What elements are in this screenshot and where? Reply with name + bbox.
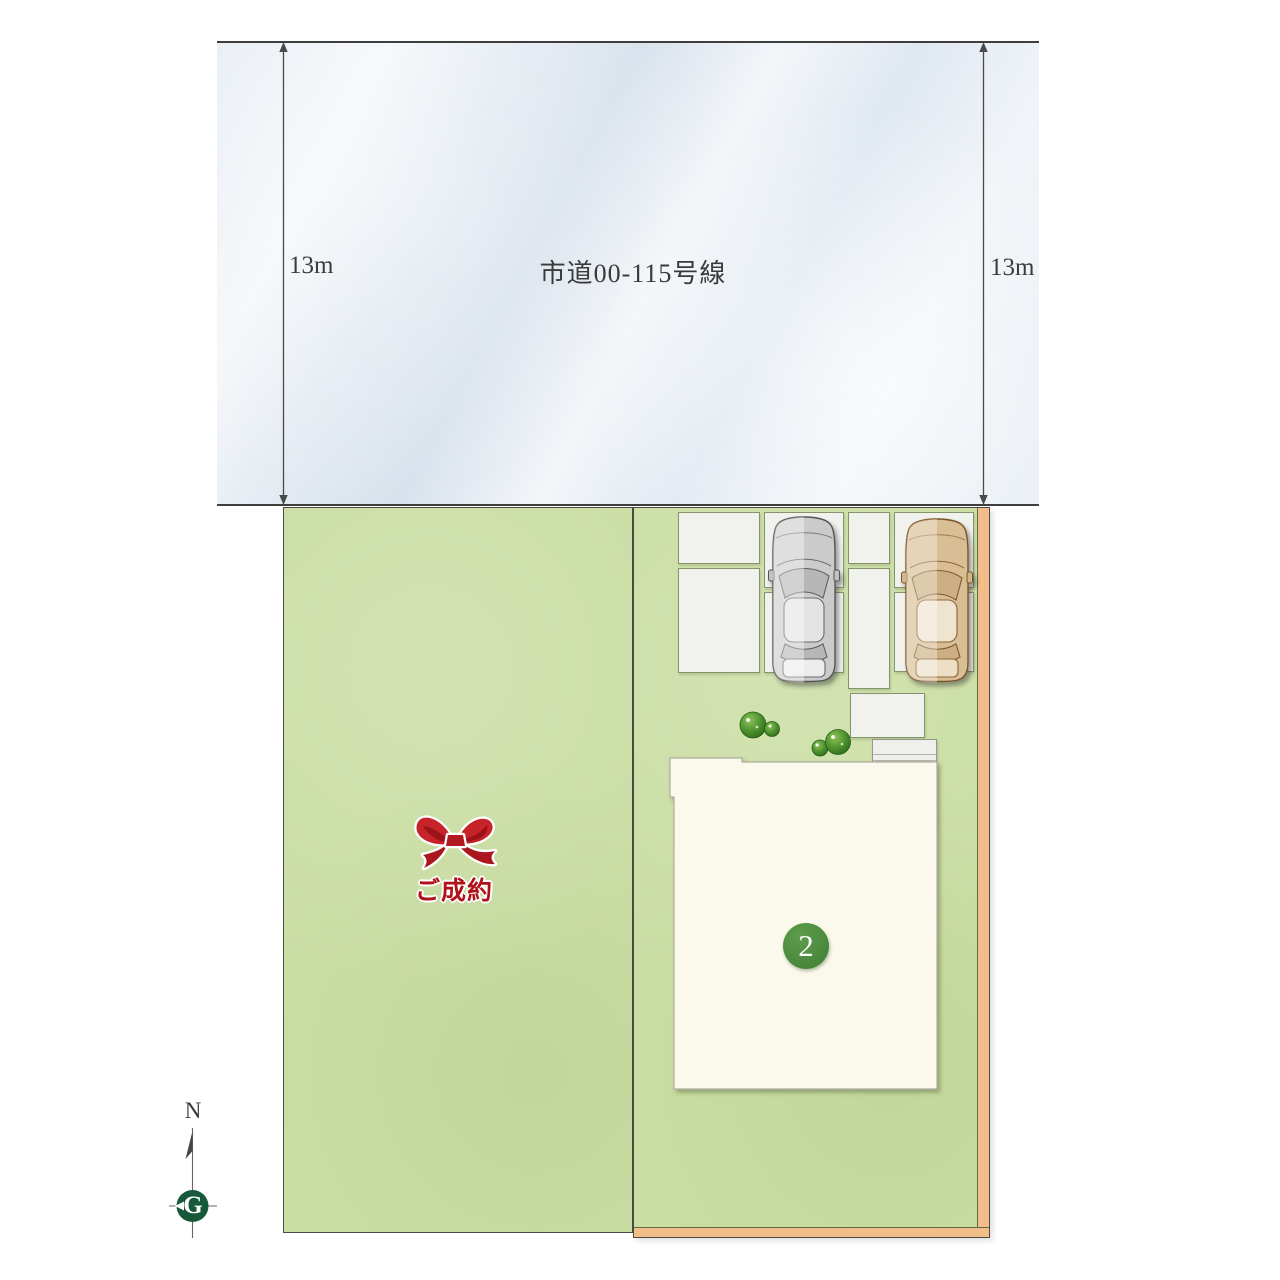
- sold-status-label: ご成約: [406, 871, 502, 907]
- compass-logo-letter: G: [178, 1192, 208, 1220]
- parking-pad: [678, 512, 760, 564]
- lot-1-area-sold: [283, 507, 633, 1233]
- lot-2-number-badge: 2: [783, 923, 829, 969]
- parking-pad: [894, 512, 974, 588]
- porch-step-line: [873, 754, 936, 755]
- entrance-walkway-pad: [850, 693, 925, 738]
- compass-needle: [186, 1131, 193, 1159]
- parking-pad: [764, 512, 844, 588]
- compass-icon: [169, 1128, 217, 1238]
- parking-pad: [764, 592, 844, 673]
- parking-pad: [848, 568, 890, 689]
- compass-north-label: N: [178, 1098, 208, 1124]
- entrance-porch: [872, 739, 937, 827]
- site-plan-canvas: 2 市道00-115号線 13m 13m ご成約 N G: [0, 0, 1280, 1280]
- dimension-label-left: 13m: [289, 252, 333, 280]
- parking-pad: [678, 568, 760, 673]
- road-name-label: 市道00-115号線: [502, 253, 764, 290]
- parking-pad: [894, 592, 974, 672]
- lot-2-boundary-band-bottom: [634, 1227, 989, 1237]
- lot-2-boundary-band-right: [977, 508, 989, 1237]
- parking-pad: [848, 512, 890, 564]
- dimension-label-right: 13m: [990, 254, 1034, 282]
- porch-landing: [875, 761, 933, 825]
